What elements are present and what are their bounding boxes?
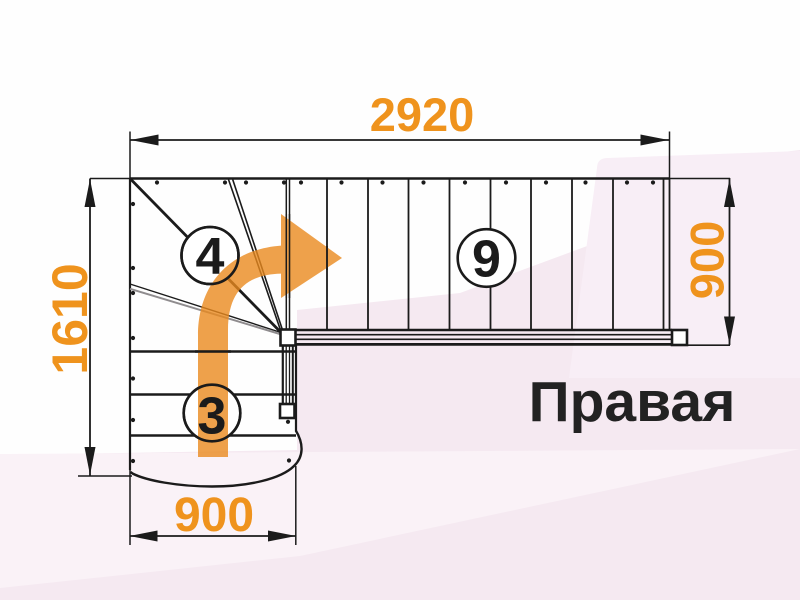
svg-text:3: 3	[198, 388, 227, 446]
svg-text:900: 900	[681, 221, 734, 299]
svg-text:9: 9	[472, 231, 501, 289]
svg-text:2920: 2920	[370, 88, 475, 141]
svg-text:4: 4	[196, 228, 225, 286]
svg-text:900: 900	[174, 489, 254, 542]
svg-text:1610: 1610	[42, 263, 98, 374]
svg-text:Правая: Правая	[529, 370, 736, 434]
